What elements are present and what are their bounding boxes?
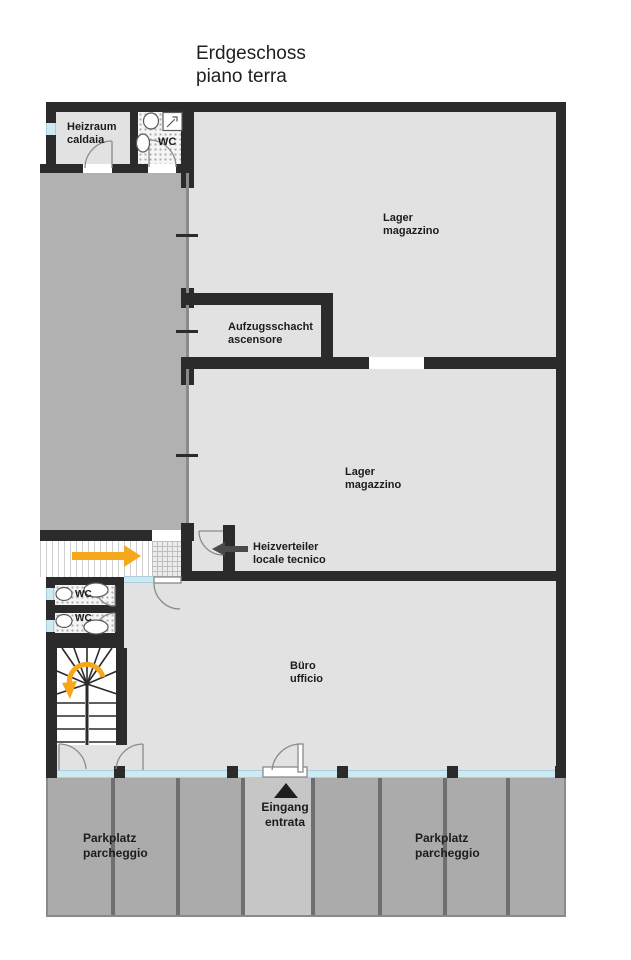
floor-plan: Erdgeschoss piano terra [0, 0, 631, 960]
door-ramp-entry [154, 577, 181, 609]
label-wc-mid-lower: WC [75, 613, 92, 624]
label-entrance: Eingang entrata [235, 800, 335, 829]
label-heizraum: Heizraum caldaia [67, 121, 117, 146]
plan-title-line2: piano terra [196, 65, 306, 88]
label-storage-lower: Lager magazzino [345, 466, 401, 491]
shower-icon [163, 113, 182, 131]
sink-icon [137, 134, 150, 152]
toilet-icon [56, 615, 72, 628]
toilet-icon [56, 588, 72, 601]
label-wc-top: WC [158, 136, 176, 149]
plan-title: Erdgeschoss piano terra [196, 42, 306, 88]
door-main-entrance [263, 744, 307, 777]
label-parking-left: Parkplatz parcheggio [83, 831, 148, 860]
label-technical-room: Heizverteiler locale tecnico [253, 541, 326, 566]
label-elevator: Aufzugsschacht ascensore [228, 321, 313, 346]
label-office: Büro ufficio [290, 660, 323, 685]
label-parking-right: Parkplatz parcheggio [415, 831, 480, 860]
ramp-direction-arrow-icon [72, 545, 141, 567]
door-stair-right [116, 744, 143, 770]
toilet-icon [144, 113, 159, 129]
label-wc-mid-upper: WC [75, 589, 92, 600]
plan-title-line1: Erdgeschoss [196, 42, 306, 65]
entrance-arrow-icon [274, 783, 298, 798]
door-stair-left [59, 744, 86, 770]
label-storage-upper: Lager magazzino [383, 212, 439, 237]
